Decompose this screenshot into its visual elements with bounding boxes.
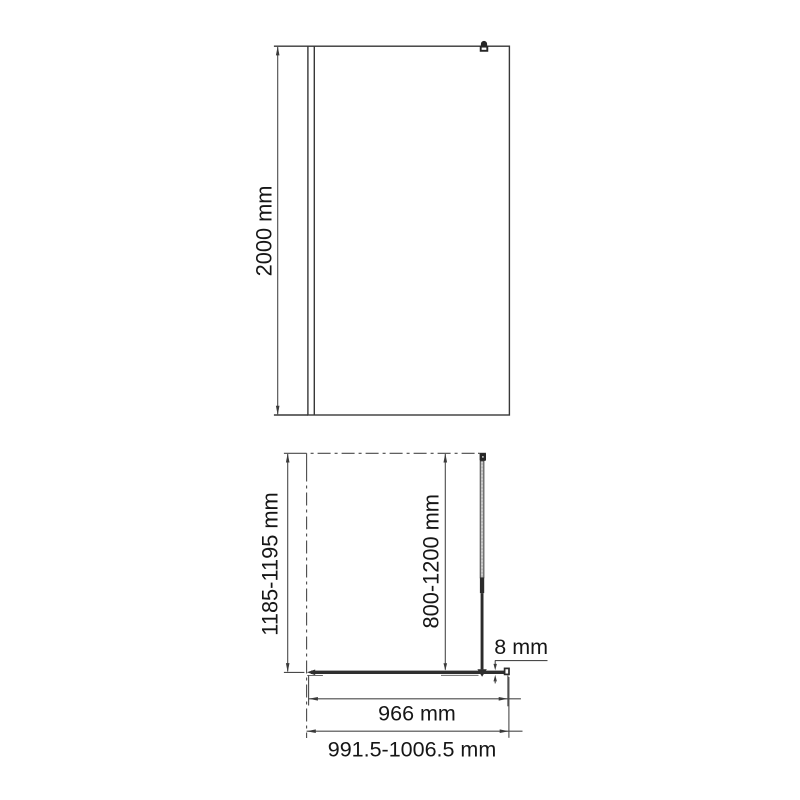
svg-text:8 mm: 8 mm bbox=[494, 635, 548, 659]
svg-text:966 mm: 966 mm bbox=[378, 701, 456, 725]
svg-text:1185-1195 mm: 1185-1195 mm bbox=[258, 492, 283, 635]
svg-text:2000 mm: 2000 mm bbox=[252, 186, 277, 277]
svg-text:991.5-1006.5 mm: 991.5-1006.5 mm bbox=[328, 738, 497, 762]
svg-text:800-1200 mm: 800-1200 mm bbox=[418, 494, 443, 629]
